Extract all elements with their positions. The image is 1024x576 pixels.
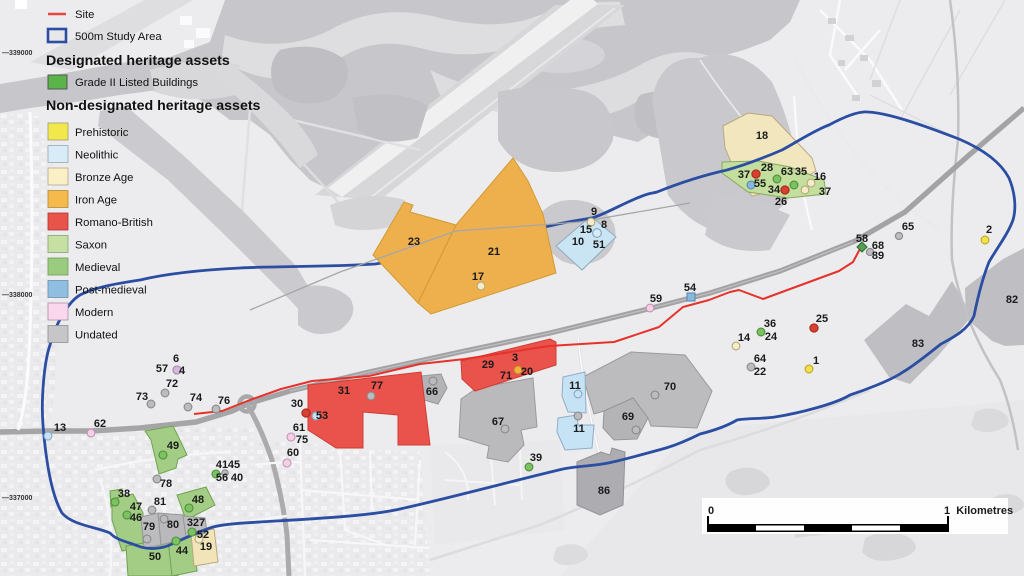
svg-text:63: 63	[781, 166, 793, 178]
svg-text:23: 23	[408, 236, 420, 248]
svg-text:1: 1	[813, 355, 819, 367]
svg-text:52: 52	[197, 529, 209, 541]
svg-text:70: 70	[664, 381, 676, 393]
svg-text:61: 61	[293, 422, 305, 434]
svg-text:53: 53	[316, 410, 328, 422]
svg-text:Modern: Modern	[75, 307, 113, 319]
svg-text:89: 89	[872, 250, 884, 262]
svg-text:38: 38	[118, 488, 130, 500]
svg-text:11: 11	[573, 423, 585, 435]
svg-text:Grade II Listed Buildings: Grade II Listed Buildings	[75, 77, 198, 89]
svg-text:56: 56	[216, 472, 228, 484]
svg-text:37: 37	[819, 186, 831, 198]
svg-text:Post-medieval: Post-medieval	[75, 285, 147, 297]
svg-text:83: 83	[912, 338, 924, 350]
svg-text:18: 18	[756, 130, 768, 142]
svg-text:26: 26	[775, 196, 787, 208]
svg-text:28: 28	[761, 162, 773, 174]
svg-text:0: 0	[708, 505, 714, 517]
svg-text:4: 4	[179, 365, 186, 377]
svg-text:—338000: —338000	[2, 292, 32, 299]
svg-text:2: 2	[986, 224, 992, 236]
svg-text:75: 75	[296, 434, 308, 446]
svg-text:57: 57	[156, 363, 168, 375]
svg-text:29: 29	[482, 359, 494, 371]
svg-text:327: 327	[187, 517, 205, 529]
svg-text:66: 66	[426, 386, 438, 398]
svg-text:67: 67	[492, 416, 504, 428]
svg-text:37: 37	[738, 169, 750, 181]
svg-text:73: 73	[136, 391, 148, 403]
svg-text:17: 17	[472, 271, 484, 283]
svg-text:86: 86	[598, 485, 610, 497]
svg-text:77: 77	[371, 380, 383, 392]
svg-text:Romano-British: Romano-British	[75, 217, 153, 229]
svg-text:72: 72	[166, 378, 178, 390]
svg-text:55: 55	[754, 178, 766, 190]
svg-text:59: 59	[650, 293, 662, 305]
svg-text:48: 48	[192, 494, 204, 506]
svg-text:13: 13	[54, 422, 66, 434]
svg-text:41: 41	[216, 459, 228, 471]
svg-text:44: 44	[176, 545, 189, 557]
svg-text:16: 16	[814, 171, 826, 183]
svg-text:51: 51	[593, 239, 605, 251]
svg-text:6: 6	[173, 353, 179, 365]
svg-text:Medieval: Medieval	[75, 262, 120, 274]
svg-text:31: 31	[338, 385, 350, 397]
svg-text:—339000: —339000	[2, 50, 32, 57]
svg-text:Undated: Undated	[75, 330, 118, 342]
svg-text:Saxon: Saxon	[75, 240, 107, 252]
svg-text:54: 54	[684, 282, 697, 294]
svg-text:39: 39	[530, 452, 542, 464]
svg-text:Iron Age: Iron Age	[75, 195, 117, 207]
svg-text:22: 22	[754, 366, 766, 378]
svg-text:Site: Site	[75, 9, 94, 21]
svg-text:19: 19	[200, 541, 212, 553]
svg-text:69: 69	[622, 411, 634, 423]
svg-text:500m Study Area: 500m Study Area	[75, 31, 162, 43]
svg-text:76: 76	[218, 395, 230, 407]
svg-text:34: 34	[768, 184, 781, 196]
svg-text:60: 60	[287, 447, 299, 459]
svg-text:58: 58	[856, 233, 868, 245]
svg-text:78: 78	[160, 478, 172, 490]
svg-text:35: 35	[795, 166, 807, 178]
svg-text:8: 8	[601, 219, 607, 231]
svg-text:50: 50	[149, 551, 161, 563]
svg-text:79: 79	[143, 521, 155, 533]
svg-text:45: 45	[228, 459, 240, 471]
svg-text:36: 36	[764, 318, 776, 330]
svg-text:Neolithic: Neolithic	[75, 150, 119, 162]
svg-text:82: 82	[1006, 294, 1018, 306]
svg-text:21: 21	[488, 246, 500, 258]
svg-text:9: 9	[591, 206, 597, 218]
svg-text:49: 49	[167, 440, 179, 452]
svg-text:—337000: —337000	[2, 495, 32, 502]
svg-text:80: 80	[167, 519, 179, 531]
svg-text:3: 3	[512, 352, 518, 364]
svg-text:Prehistoric: Prehistoric	[75, 127, 129, 139]
svg-text:62: 62	[94, 418, 106, 430]
svg-text:74: 74	[190, 392, 203, 404]
svg-text:10: 10	[572, 236, 584, 248]
svg-text:30: 30	[291, 398, 303, 410]
svg-text:20: 20	[521, 366, 533, 378]
svg-text:Bronze Age: Bronze Age	[75, 172, 133, 184]
svg-text:25: 25	[816, 313, 828, 325]
svg-text:40: 40	[231, 472, 243, 484]
svg-text:24: 24	[765, 331, 778, 343]
svg-text:65: 65	[902, 221, 914, 233]
svg-text:71: 71	[500, 370, 512, 382]
svg-text:81: 81	[154, 496, 166, 508]
svg-text:14: 14	[738, 332, 751, 344]
svg-text:64: 64	[754, 353, 767, 365]
svg-text:11: 11	[569, 380, 581, 392]
svg-text:46: 46	[130, 512, 142, 524]
svg-text:1 Kilometres: 1 Kilometres	[944, 505, 1013, 517]
svg-text:15: 15	[580, 224, 592, 236]
svg-text:Non-designated heritage assets: Non-designated heritage assets	[46, 98, 261, 114]
svg-text:Designated heritage assets: Designated heritage assets	[46, 53, 230, 69]
